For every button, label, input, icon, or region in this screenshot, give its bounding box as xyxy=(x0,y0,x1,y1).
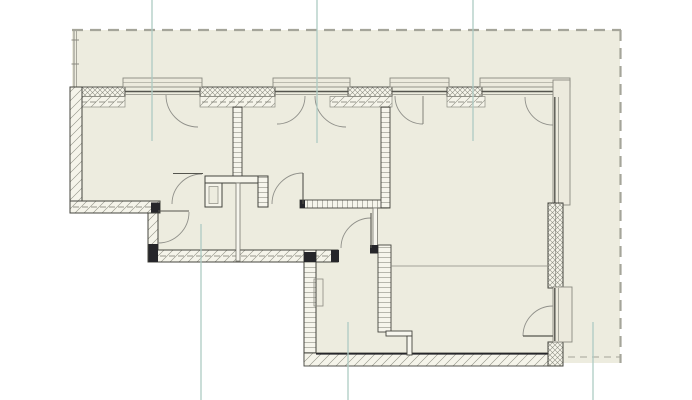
partition-room2-room3 xyxy=(381,107,390,208)
partition-room1-room2 xyxy=(233,107,242,176)
cap-step-bottom xyxy=(149,244,159,262)
floor-plan xyxy=(0,0,692,400)
doorway-header xyxy=(386,331,412,336)
cap-bottomleft-corner xyxy=(304,252,316,262)
wall-right-lower xyxy=(548,342,563,366)
balcony-door-frame xyxy=(553,287,572,342)
partition-thin-corridor xyxy=(236,183,240,261)
wall-bottom-south xyxy=(304,353,563,366)
floor-plan-stage xyxy=(0,0,692,400)
shaft-right-block xyxy=(258,176,268,207)
wall-left-exterior xyxy=(70,87,82,213)
partition-room2-south xyxy=(300,200,387,208)
window-4-corner-right-frame xyxy=(553,80,570,205)
cap-corridor-east xyxy=(331,250,339,262)
partition-thin-east xyxy=(373,208,378,250)
partition-lower-rooms xyxy=(378,245,391,332)
wall-top-pier-4 xyxy=(447,87,482,97)
wall-top-pier-3 xyxy=(348,87,392,97)
doorway-jamb xyxy=(407,336,412,355)
shaft-left-inner xyxy=(209,187,218,204)
wall-top-pier-2 xyxy=(200,87,275,97)
